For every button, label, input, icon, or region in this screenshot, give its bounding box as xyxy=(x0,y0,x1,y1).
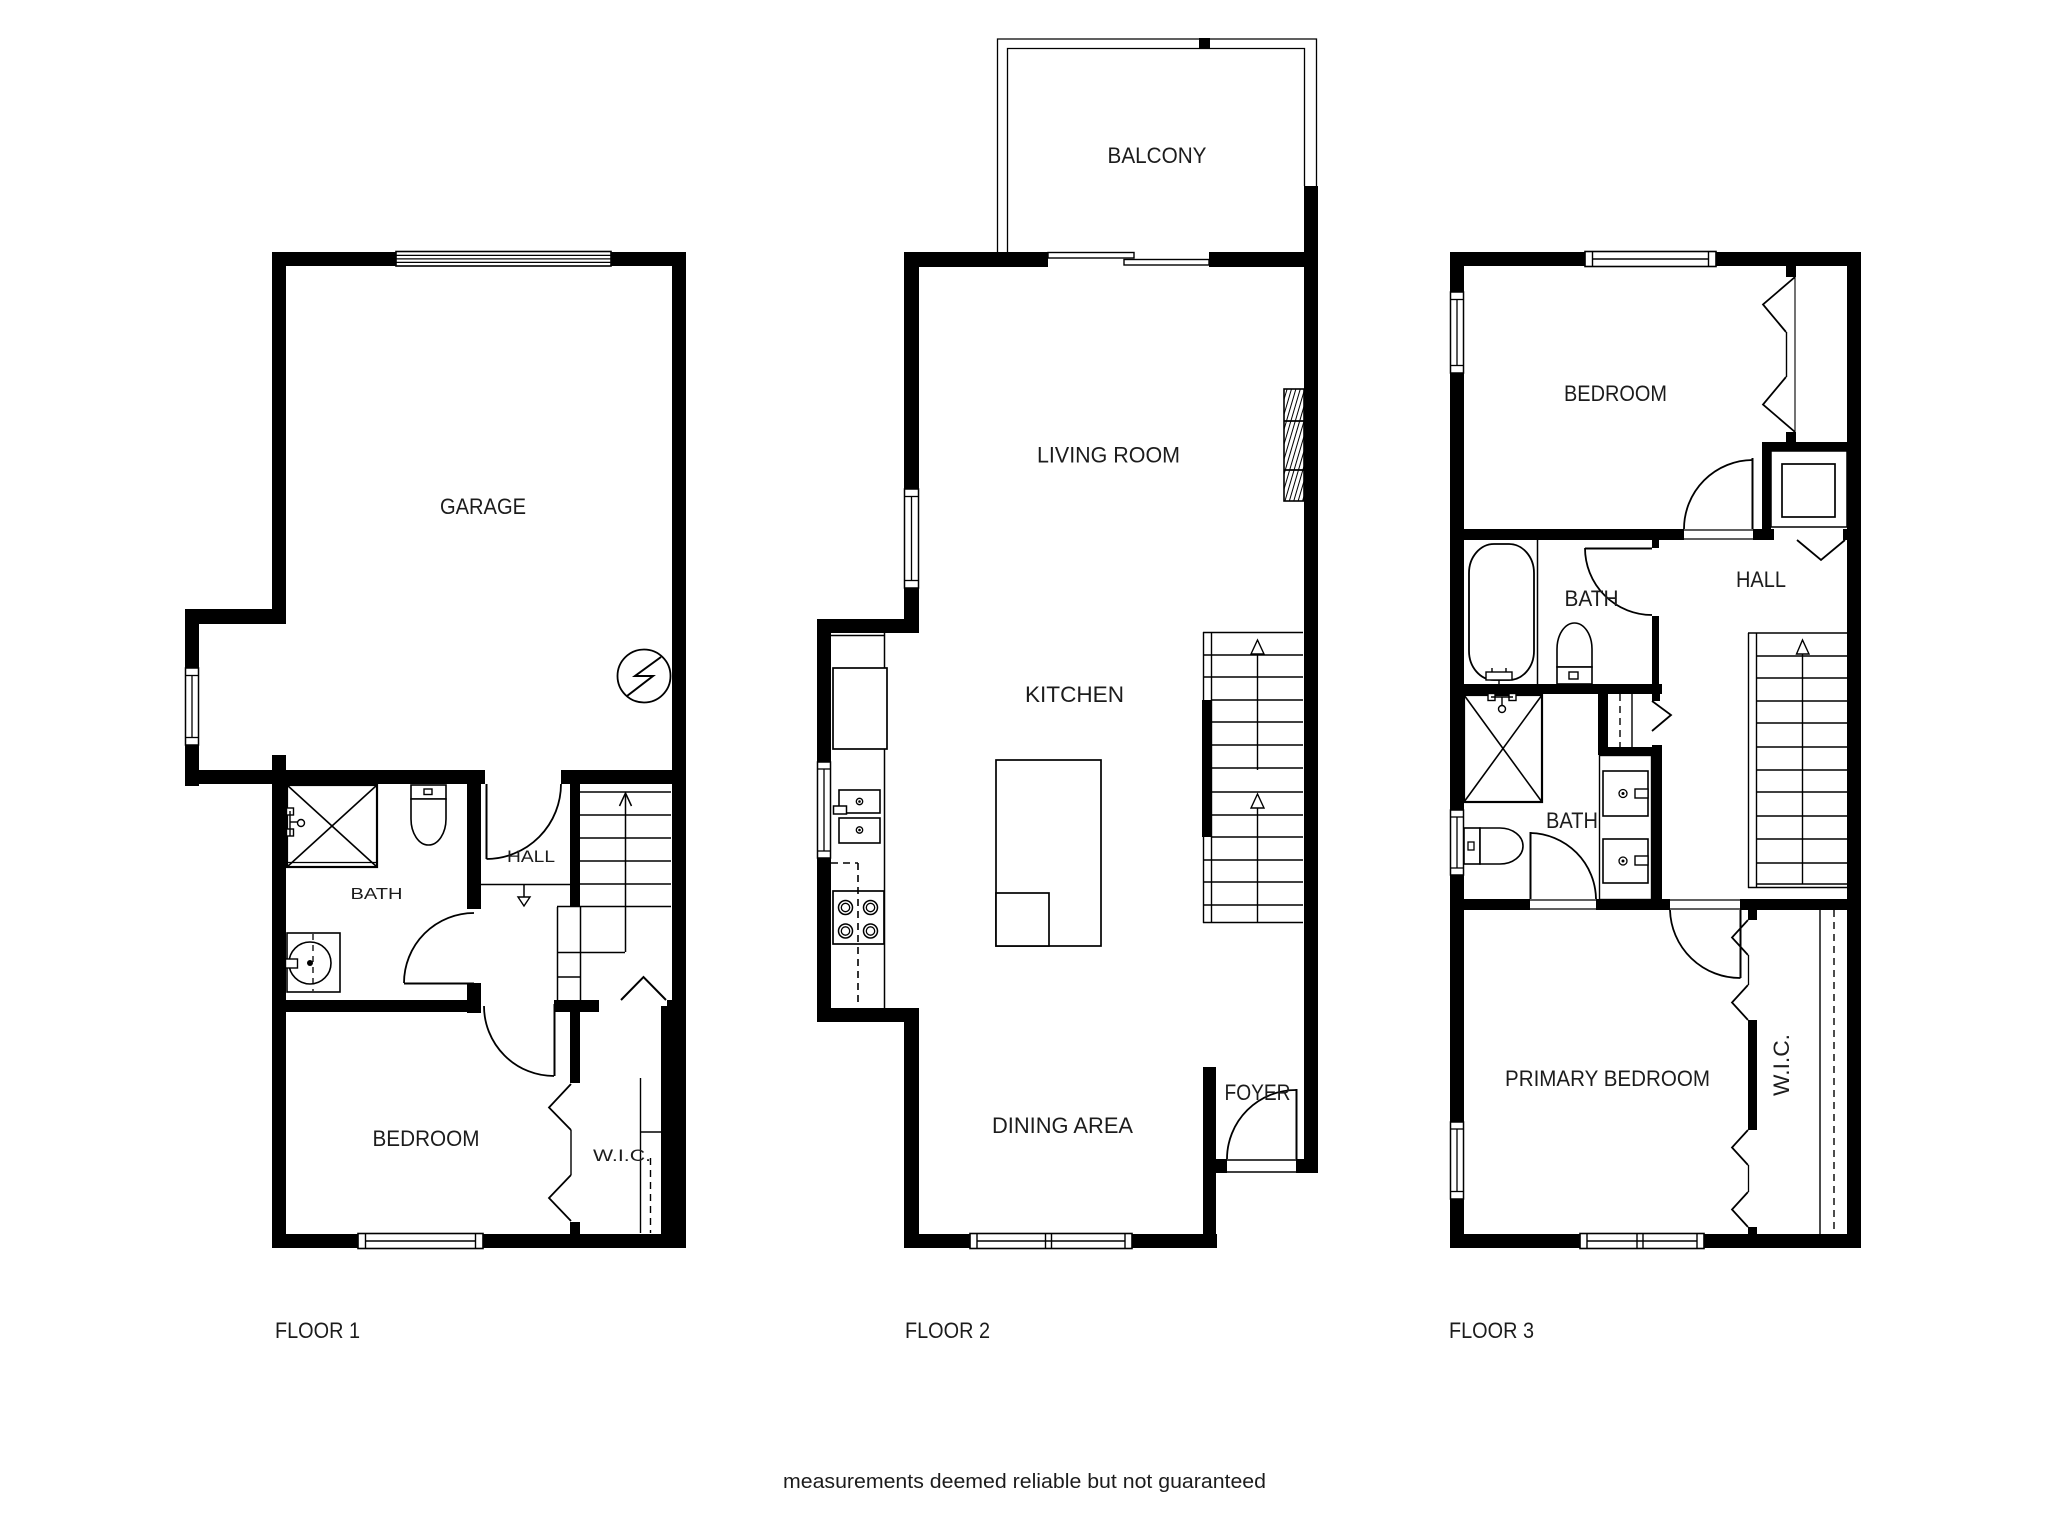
svg-text:FLOOR 2: FLOOR 2 xyxy=(905,1318,990,1343)
svg-text:W.I.C.: W.I.C. xyxy=(593,1146,651,1165)
svg-text:W.I.C.: W.I.C. xyxy=(1769,1034,1794,1096)
svg-text:LIVING ROOM: LIVING ROOM xyxy=(1037,443,1180,468)
svg-text:HALL: HALL xyxy=(507,847,555,866)
svg-text:DINING AREA: DINING AREA xyxy=(992,1113,1133,1138)
svg-text:FLOOR 1: FLOOR 1 xyxy=(275,1318,360,1343)
svg-text:FLOOR 3: FLOOR 3 xyxy=(1449,1318,1534,1343)
svg-text:measurements deemed reliable b: measurements deemed reliable but not gua… xyxy=(783,1471,1266,1493)
svg-text:BATH: BATH xyxy=(1546,808,1598,833)
svg-text:FOYER: FOYER xyxy=(1225,1080,1291,1105)
svg-text:BATH: BATH xyxy=(351,886,403,903)
svg-text:BATH: BATH xyxy=(1565,586,1619,611)
svg-text:GARAGE: GARAGE xyxy=(440,494,526,519)
svg-text:BALCONY: BALCONY xyxy=(1108,143,1207,168)
svg-text:KITCHEN: KITCHEN xyxy=(1025,682,1124,707)
svg-text:HALL: HALL xyxy=(1736,567,1786,592)
svg-text:PRIMARY BEDROOM: PRIMARY BEDROOM xyxy=(1505,1066,1710,1091)
svg-text:BEDROOM: BEDROOM xyxy=(373,1126,480,1151)
svg-text:BEDROOM: BEDROOM xyxy=(1564,381,1667,406)
